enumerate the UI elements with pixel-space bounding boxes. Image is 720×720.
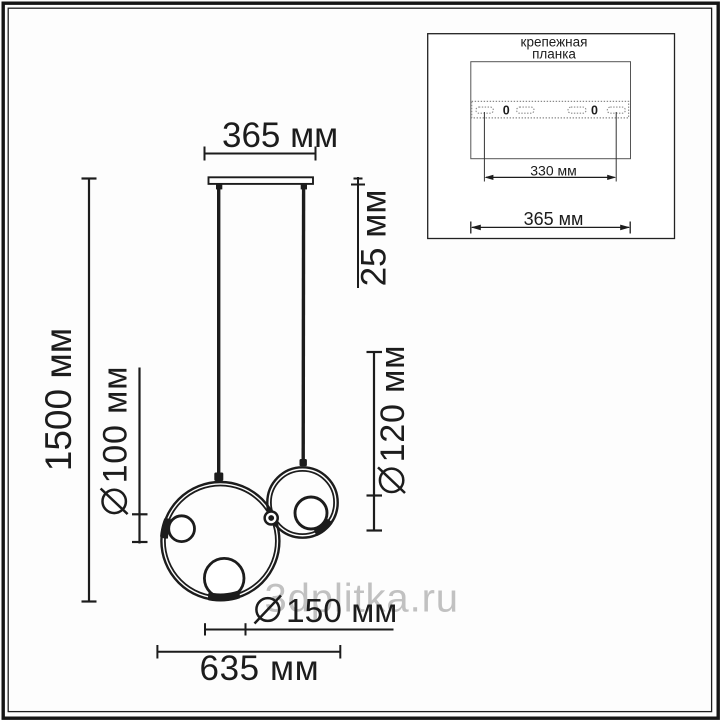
svg-text:0: 0: [591, 103, 598, 117]
svg-text:100 мм: 100 мм: [97, 366, 135, 484]
svg-text:120 мм: 120 мм: [374, 345, 412, 463]
svg-text:150 мм: 150 мм: [286, 593, 397, 630]
svg-text:635 мм: 635 мм: [200, 649, 320, 688]
svg-text:365 мм: 365 мм: [222, 116, 338, 155]
svg-text:365 мм: 365 мм: [524, 209, 584, 229]
svg-text:330 мм: 330 мм: [530, 163, 577, 179]
svg-text:1500 мм: 1500 мм: [38, 328, 79, 471]
svg-text:25 мм: 25 мм: [354, 190, 393, 287]
svg-text:планка: планка: [532, 47, 576, 62]
svg-text:0: 0: [503, 103, 510, 117]
